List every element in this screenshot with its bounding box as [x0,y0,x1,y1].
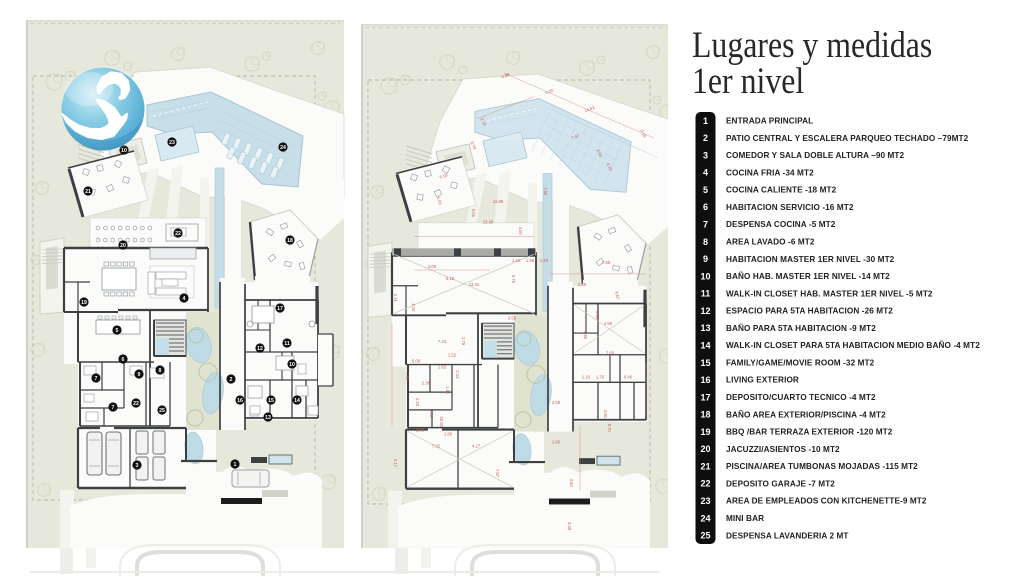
svg-text:HABITACION MASTER 1ER NIVEL -3: HABITACION MASTER 1ER NIVEL -30 MT2 [726,255,895,264]
svg-text:22: 22 [133,401,139,407]
svg-text:25: 25 [159,408,165,414]
svg-text:13.98: 13.98 [483,220,494,225]
svg-text:18: 18 [700,410,710,420]
svg-text:MINI BAR: MINI BAR [726,514,764,523]
svg-text:6.17: 6.17 [393,459,398,468]
svg-text:10: 10 [121,148,127,154]
svg-text:2.79: 2.79 [461,337,466,346]
svg-text:22: 22 [175,231,181,237]
svg-text:13: 13 [265,415,271,421]
svg-text:2.36: 2.36 [422,380,431,385]
svg-text:22: 22 [700,479,710,489]
svg-text:1.49: 1.49 [540,258,549,263]
svg-text:7: 7 [112,405,115,411]
svg-text:8: 8 [159,368,162,374]
svg-text:21: 21 [700,461,710,471]
svg-text:2.59: 2.59 [552,400,561,405]
svg-text:3: 3 [703,150,708,160]
svg-text:COMEDOR Y SALA DOBLE ALTURA –9: COMEDOR Y SALA DOBLE ALTURA –90 MT2 [726,151,905,160]
svg-text:2.98: 2.98 [416,428,425,433]
svg-text:2: 2 [230,377,233,383]
svg-text:19: 19 [700,427,710,437]
svg-text:5.18: 5.18 [446,276,455,281]
svg-text:15: 15 [268,398,274,404]
svg-text:2: 2 [703,133,708,143]
svg-text:10: 10 [700,271,710,281]
svg-text:WALK-IN CLOSET HAB. MASTER 1ER: WALK-IN CLOSET HAB. MASTER 1ER NIVEL -5 … [726,289,933,298]
svg-text:1: 1 [234,462,237,468]
svg-text:12: 12 [700,306,710,316]
svg-text:7.43: 7.43 [438,339,447,344]
svg-text:3.74: 3.74 [393,294,398,303]
svg-text:1.52: 1.52 [448,353,457,358]
svg-text:18: 18 [287,238,293,244]
svg-text:6.75: 6.75 [511,275,516,284]
svg-text:16: 16 [700,375,710,385]
svg-text:24: 24 [280,145,286,151]
svg-text:PATIO CENTRAL Y ESCALERA PARQU: PATIO CENTRAL Y ESCALERA PARQUEO TECHADO… [726,134,969,143]
svg-text:6: 6 [122,357,125,363]
svg-text:7: 7 [703,220,708,230]
svg-text:20: 20 [120,243,126,249]
svg-text:7.32: 7.32 [432,443,441,448]
svg-text:7.88: 7.88 [602,260,611,265]
svg-text:1.62: 1.62 [438,365,447,370]
svg-text:AREA DE EMPLEADOS CON KITCHENE: AREA DE EMPLEADOS CON KITCHENETTE-9 MT2 [726,497,927,506]
svg-text:25: 25 [700,531,710,541]
svg-text:23: 23 [169,140,175,146]
svg-text:AREA LAVADO -6 MT2: AREA LAVADO -6 MT2 [726,238,815,247]
svg-text:7.60: 7.60 [606,351,615,356]
svg-text:4.17: 4.17 [472,443,481,448]
svg-text:19: 19 [81,300,87,306]
svg-text:DESPENSA COCINA -5 MT2: DESPENSA COCINA -5 MT2 [726,220,836,229]
svg-text:9: 9 [703,254,708,264]
svg-text:FAMILY/GAME/MOVIE ROOM -32 MT2: FAMILY/GAME/MOVIE ROOM -32 MT2 [726,359,875,368]
svg-text:3: 3 [136,463,139,469]
svg-text:BAÑO PARA 5TA HABITACION -9 MT: BAÑO PARA 5TA HABITACION -9 MT2 [726,323,876,333]
svg-text:HABITACION SERVICIO -16 MT2: HABITACION SERVICIO -16 MT2 [726,203,854,212]
svg-text:DESPENSA LAVANDERIA 2 MT: DESPENSA LAVANDERIA 2 MT [726,531,849,540]
svg-text:13.41: 13.41 [469,282,480,287]
svg-text:COCINA FRIA -34 MT2: COCINA FRIA -34 MT2 [726,168,814,177]
svg-text:1.80: 1.80 [583,331,588,340]
svg-text:1.80: 1.80 [444,432,453,437]
svg-text:1.98: 1.98 [526,258,535,263]
svg-text:11.89: 11.89 [493,199,504,204]
svg-text:DEPOSITO GARAJE -7 MT2: DEPOSITO GARAJE -7 MT2 [726,479,835,488]
svg-text:2.30: 2.30 [429,410,434,419]
svg-text:16: 16 [237,398,243,404]
svg-text:2.00: 2.00 [428,264,437,269]
svg-text:17: 17 [700,392,710,402]
svg-text:BAÑO AREA EXTERIOR/PISCINA -4: BAÑO AREA EXTERIOR/PISCINA -4 MT2 [726,409,886,419]
svg-text:3.39: 3.39 [567,522,572,531]
svg-text:4.00: 4.00 [603,410,608,419]
svg-text:13: 13 [700,323,710,333]
svg-text:COCINA CALIENTE -18 MT2: COCINA CALIENTE -18 MT2 [726,186,837,195]
svg-text:4: 4 [703,168,708,178]
svg-text:1.90: 1.90 [445,386,450,395]
svg-text:4.00: 4.00 [518,227,523,236]
svg-text:7.87: 7.87 [495,469,500,478]
svg-text:BAÑO HAB. MASTER 1ER NIVEL -14: BAÑO HAB. MASTER 1ER NIVEL -14 MT2 [726,271,890,281]
svg-text:8: 8 [703,237,708,247]
svg-text:24: 24 [700,513,710,523]
svg-text:2.59: 2.59 [578,282,587,287]
svg-text:4.00: 4.00 [595,311,600,320]
svg-text:2.59: 2.59 [508,315,517,320]
svg-text:2.20: 2.20 [415,398,420,407]
svg-text:WALK-IN CLOSET PARA 5TA HABITA: WALK-IN CLOSET PARA 5TA HABITACION MEDIO… [726,340,980,350]
svg-text:3.50: 3.50 [569,479,574,488]
svg-text:1.40: 1.40 [512,258,521,263]
svg-text:10: 10 [289,362,295,368]
svg-text:1er nivel: 1er nivel [692,61,804,102]
svg-text:1.80: 1.80 [552,439,561,444]
svg-text:1.70: 1.70 [596,374,605,379]
svg-text:11: 11 [284,341,290,347]
svg-text:PISCINA/AREA TUMBONAS MOJADAS: PISCINA/AREA TUMBONAS MOJADAS -115 MT2 [726,462,918,471]
svg-text:5.06: 5.06 [471,209,476,218]
svg-text:23: 23 [700,496,710,506]
svg-text:ENTRADA PRINCIPAL: ENTRADA PRINCIPAL [726,117,813,126]
svg-text:Lugares y medidas: Lugares y medidas [692,25,932,66]
svg-text:JACUZZI/ASIENTOS -10 MT2: JACUZZI/ASIENTOS -10 MT2 [726,445,840,454]
svg-text:7.56: 7.56 [543,187,548,196]
svg-text:BBQ /BAR TERRAZA EXTERIOR -120: BBQ /BAR TERRAZA EXTERIOR -120 MT2 [726,428,893,437]
svg-text:DEPOSITO/CUARTO TECNICO -4 MT2: DEPOSITO/CUARTO TECNICO -4 MT2 [726,393,876,402]
svg-text:5: 5 [703,185,708,195]
svg-text:4: 4 [183,296,186,302]
svg-text:2.90: 2.90 [405,372,410,381]
svg-text:4.90: 4.90 [604,321,613,326]
svg-text:ESPACIO PARA 5TA HABITACION -2: ESPACIO PARA 5TA HABITACION -26 MT2 [726,307,893,316]
svg-text:5.00: 5.00 [412,359,421,364]
svg-text:50.60: 50.60 [439,417,444,428]
svg-text:14: 14 [294,398,300,404]
svg-text:12: 12 [257,346,263,352]
svg-text:2.23: 2.23 [455,370,460,379]
svg-text:14: 14 [700,341,710,351]
svg-text:5: 5 [116,328,119,334]
svg-text:21: 21 [85,189,91,195]
svg-text:1: 1 [703,116,708,126]
svg-text:11: 11 [701,289,711,299]
svg-text:1.10: 1.10 [582,374,591,379]
svg-text:8.70: 8.70 [607,424,612,433]
svg-text:17: 17 [277,306,283,312]
svg-text:9: 9 [138,372,141,378]
svg-text:6: 6 [703,202,708,212]
svg-text:LIVING EXTERIOR: LIVING EXTERIOR [726,376,799,385]
svg-text:0.46: 0.46 [624,374,633,379]
svg-text:7: 7 [95,376,98,382]
svg-text:15: 15 [700,358,710,368]
svg-text:4.20: 4.20 [411,303,416,312]
svg-text:20: 20 [700,444,710,454]
